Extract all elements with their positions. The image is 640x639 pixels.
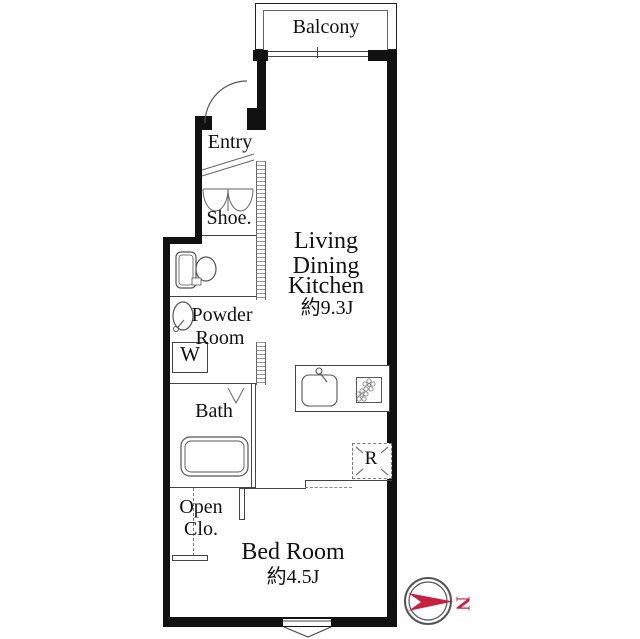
ldk-label-line3: Kitchen: [288, 274, 364, 298]
open-closet-label-line1: Open: [179, 497, 222, 517]
basin-icon: [173, 302, 193, 332]
bath-label: Bath: [195, 401, 233, 421]
entry-step-lines: [202, 154, 254, 176]
toilet-icon: [176, 252, 216, 288]
compass-north-letter: N: [451, 596, 474, 610]
floor-plan: Balcony Entry Shoe. Living Dining Kitche…: [0, 0, 640, 639]
powder-room-label-line2: Room: [196, 328, 245, 348]
entry-door-arc-icon: [205, 81, 247, 123]
bathtub-icon: [181, 437, 248, 476]
balcony-label: Balcony: [293, 17, 360, 37]
ldk-label-line1: Living: [294, 229, 358, 253]
bedroom-window-icon: [283, 621, 331, 637]
refrigerator-label: R: [365, 449, 378, 468]
bedroom-area-label: 約4.5J: [267, 567, 320, 587]
kitchen-sink-icon: [302, 368, 337, 406]
powder-room-label-line1: Powder: [191, 305, 252, 325]
washer-label: W: [180, 344, 200, 365]
ldk-area-label: 約9.3J: [301, 298, 354, 318]
compass-icon: [405, 578, 453, 624]
entry-label: Entry: [208, 132, 252, 152]
bedroom-label: Bed Room: [241, 540, 344, 564]
open-closet-label-line2: Clo.: [184, 519, 218, 539]
stove-burners-icon: [356, 379, 375, 401]
shoe-label: Shoe.: [207, 208, 252, 228]
